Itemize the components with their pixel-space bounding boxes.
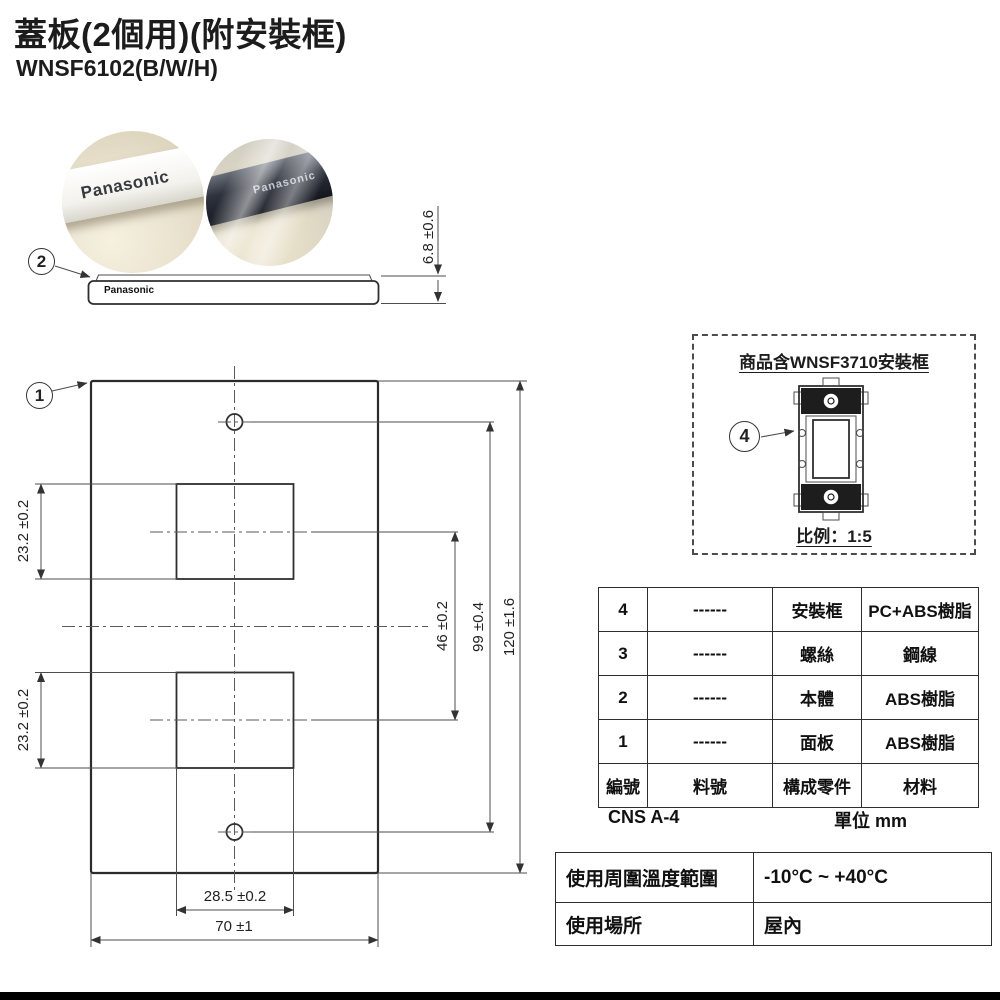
dim-cutout-height-bottom: 23.2 ±0.2 (15, 675, 33, 765)
col-header-part: 構成零件 (773, 764, 862, 808)
datasheet-page: 蓋板(2個用)(附安裝框) WNSF6102(B/W/H) Panasonic … (0, 0, 1000, 1000)
col-header-code: 料號 (648, 764, 773, 808)
dim-cutout-height-top: 23.2 ±0.2 (15, 486, 33, 576)
usage-value: 屋內 (754, 903, 992, 946)
dim-cutout-width: 28.5 ±0.2 (190, 888, 280, 906)
dim-cutout-gap: 46 ±0.2 (434, 581, 452, 671)
part-name: 面板 (773, 720, 862, 764)
part-name: 本體 (773, 676, 862, 720)
usage-conditions-table: 使用周圍溫度範圍 -10°C ~ +40°C 使用場所 屋內 (555, 852, 992, 946)
usage-label: 使用周圍溫度範圍 (556, 853, 754, 903)
table-row: 4 ------ 安裝框 PC+ABS樹脂 (599, 588, 979, 632)
balloon-2: 2 (28, 248, 55, 275)
dim-plate-height: 120 ±1.6 (501, 582, 519, 672)
part-material: PC+ABS樹脂 (862, 588, 979, 632)
usage-label: 使用場所 (556, 903, 754, 946)
front-view-drawing (35, 366, 527, 947)
side-view-brand: Panasonic (104, 285, 154, 296)
part-code: ------ (648, 720, 773, 764)
balloon-4: 4 (729, 421, 760, 452)
usage-value: -10°C ~ +40°C (754, 853, 992, 903)
col-header-material: 材料 (862, 764, 979, 808)
screw-hole-crosshair (218, 414, 494, 430)
screw-hole-crosshair (218, 824, 494, 840)
part-material: ABS樹脂 (862, 676, 979, 720)
part-name: 安裝框 (773, 588, 862, 632)
part-code: ------ (648, 632, 773, 676)
bottom-border-bar (0, 992, 1000, 1000)
table-row: 2 ------ 本體 ABS樹脂 (599, 676, 979, 720)
dim-screw-span: 99 ±0.4 (470, 582, 488, 672)
part-material: ABS樹脂 (862, 720, 979, 764)
part-no: 3 (599, 632, 648, 676)
part-code: ------ (648, 588, 773, 632)
parts-table: 4 ------ 安裝框 PC+ABS樹脂 3 ------ 螺絲 鋼線 2 -… (598, 587, 979, 808)
standard-label: CNS A-4 (608, 807, 679, 828)
part-no: 1 (599, 720, 648, 764)
table-row: 3 ------ 螺絲 鋼線 (599, 632, 979, 676)
included-frame-box: 商品含WNSF3710安裝框 4 (692, 334, 976, 555)
scale-label: 比例：1:5 (694, 522, 974, 547)
dim-plate-width: 70 ±1 (194, 918, 274, 936)
dim-thickness: 6.8 ±0.6 (420, 192, 438, 282)
part-material: 鋼線 (862, 632, 979, 676)
part-no: 4 (599, 588, 648, 632)
table-row: 1 ------ 面板 ABS樹脂 (599, 720, 979, 764)
part-code: ------ (648, 676, 773, 720)
table-row: 使用場所 屋內 (556, 903, 992, 946)
table-row: 使用周圍溫度範圍 -10°C ~ +40°C (556, 853, 992, 903)
balloon-1: 1 (26, 382, 53, 409)
part-no: 2 (599, 676, 648, 720)
table-header-row: 編號 料號 構成零件 材料 (599, 764, 979, 808)
unit-label: 單位 mm (834, 807, 907, 833)
col-header-no: 編號 (599, 764, 648, 808)
part-name: 螺絲 (773, 632, 862, 676)
